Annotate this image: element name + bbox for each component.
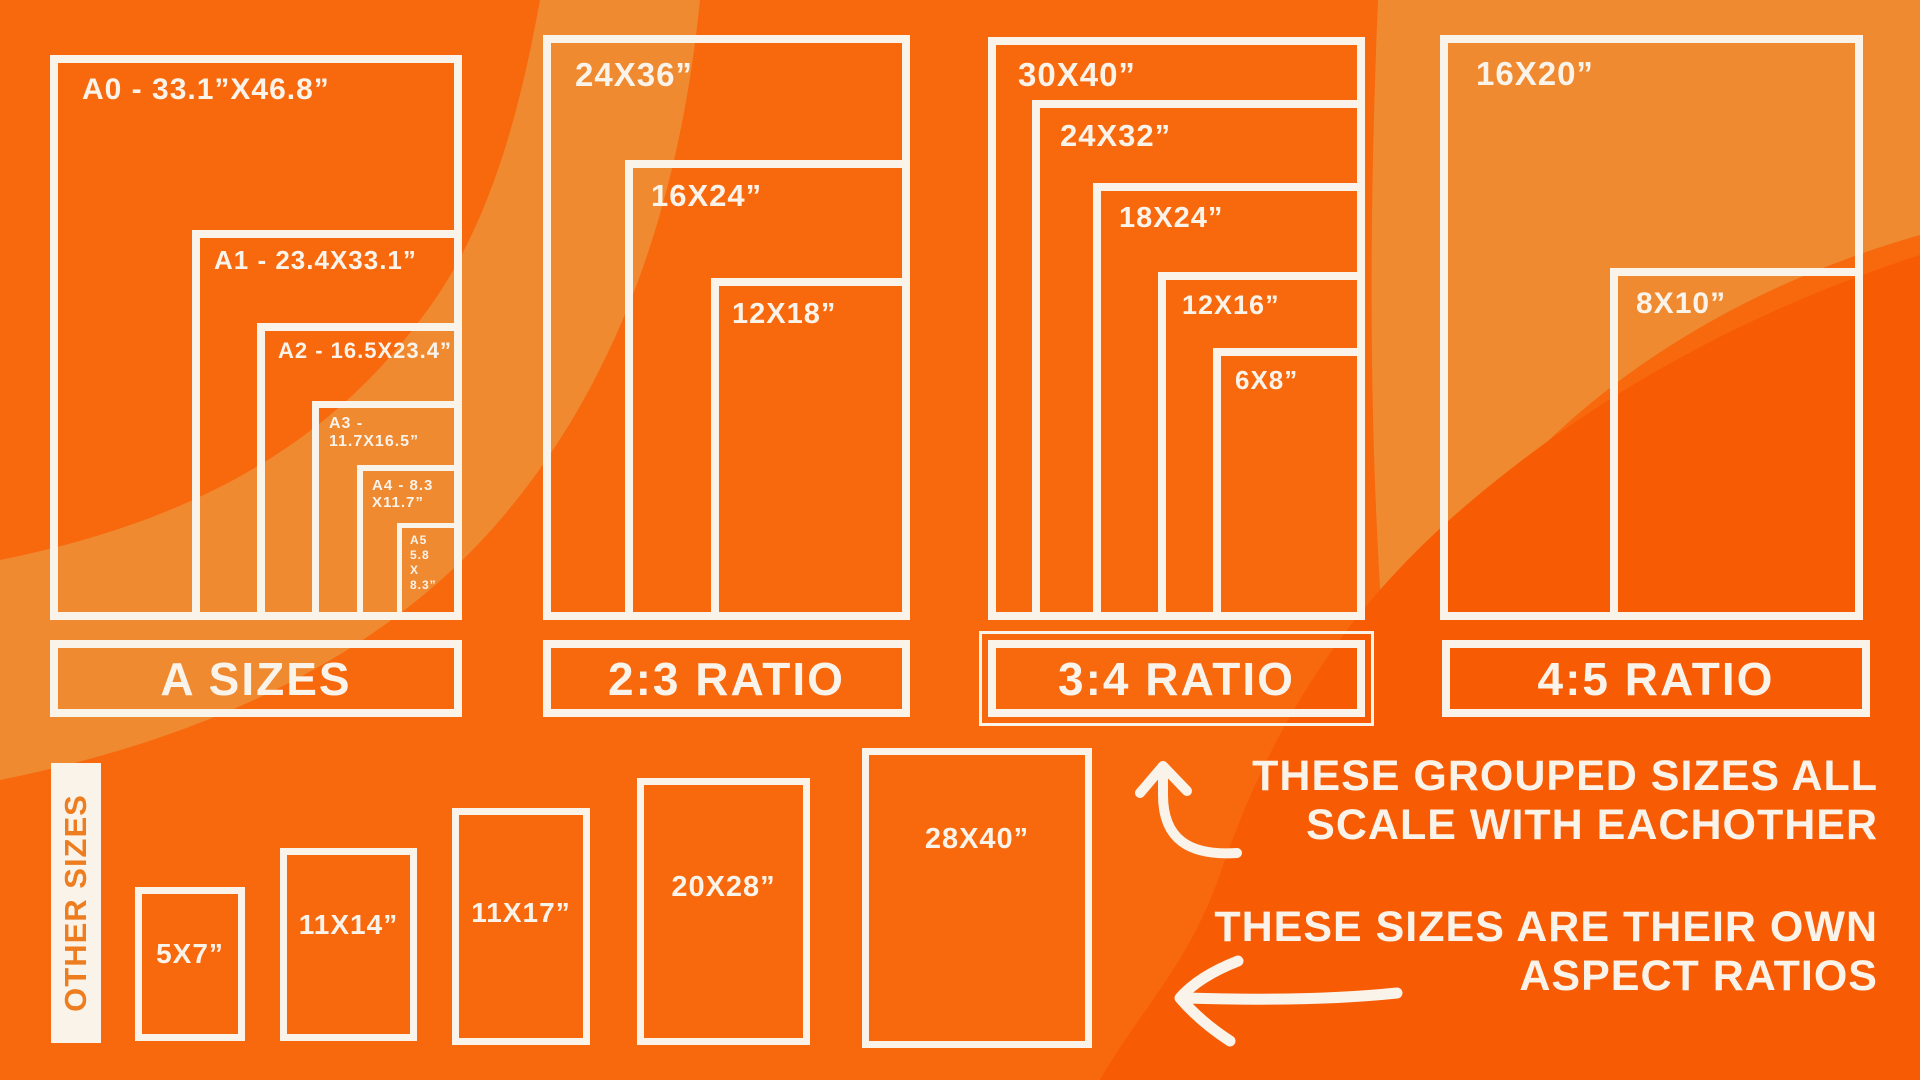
size-box-28x40: 28X40” <box>862 748 1092 1048</box>
size-label-5x7: 5X7” <box>156 938 224 970</box>
size-box-11x14: 11X14” <box>280 848 417 1041</box>
size-label-6x8: 6X8” <box>1221 356 1357 395</box>
group-label-2-3-ratio-text: 2:3 RATIO <box>608 652 845 706</box>
poster-size-infographic: A0 - 33.1”X46.8” A1 - 23.4X33.1” A2 - 16… <box>0 0 1920 1080</box>
size-label-a4: A4 - 8.3 X11.7” <box>363 471 456 512</box>
note-grouped-line1: THESE GROUPED SIZES ALL <box>1252 752 1878 801</box>
group-label-2-3-ratio: 2:3 RATIO <box>543 640 910 717</box>
size-label-a0: A0 - 33.1”X46.8” <box>58 63 454 107</box>
size-label-24x36: 24X36” <box>551 43 902 94</box>
size-label-11x14: 11X14” <box>299 909 398 941</box>
size-label-12x18: 12X18” <box>719 286 902 330</box>
size-label-24x32: 24X32” <box>1040 108 1357 154</box>
up-arrow-icon <box>1140 766 1237 853</box>
size-label-16x24: 16X24” <box>633 168 902 214</box>
size-label-a3: A3 - 11.7X16.5” <box>319 408 455 451</box>
other-sizes-bar: OTHER SIZES <box>51 763 101 1043</box>
size-label-12x16: 12X16” <box>1166 280 1357 320</box>
group-label-4-5-ratio-text: 4:5 RATIO <box>1538 652 1775 706</box>
note-grouped-sizes: THESE GROUPED SIZES ALL SCALE WITH EACHO… <box>1252 752 1878 850</box>
note-own-line1: THESE SIZES ARE THEIR OWN <box>1214 903 1878 952</box>
size-box-5x7: 5X7” <box>135 887 245 1041</box>
size-label-20x28: 20X28” <box>671 871 775 904</box>
group-label-a-sizes: A SIZES <box>50 640 462 717</box>
size-box-20x28: 20X28” <box>637 778 810 1045</box>
size-label-a5: A5 5.8 X 8.3” <box>402 528 457 593</box>
group-label-3-4-ratio: 3:4 RATIO <box>988 640 1365 717</box>
size-label-11x17: 11X17” <box>471 897 570 929</box>
other-sizes-label: OTHER SIZES <box>58 794 94 1012</box>
size-label-16x20: 16X20” <box>1448 43 1855 93</box>
size-box-a5: A5 5.8 X 8.3” <box>397 523 462 620</box>
size-label-30x40: 30X40” <box>996 45 1357 94</box>
size-box-6x8: 6X8” <box>1213 348 1365 620</box>
size-box-8x10: 8X10” <box>1610 268 1863 620</box>
size-label-a2: A2 - 16.5X23.4” <box>265 331 454 364</box>
group-label-4-5-ratio: 4:5 RATIO <box>1442 640 1870 717</box>
note-own-ratios: THESE SIZES ARE THEIR OWN ASPECT RATIOS <box>1214 903 1878 1001</box>
size-label-18x24: 18X24” <box>1101 191 1357 234</box>
size-label-8x10: 8X10” <box>1618 276 1855 321</box>
size-box-12x18: 12X18” <box>711 278 910 620</box>
size-label-a1: A1 - 23.4X33.1” <box>200 238 454 275</box>
size-label-28x40: 28X40” <box>925 823 1029 856</box>
size-box-11x17: 11X17” <box>452 808 590 1045</box>
group-label-a-sizes-text: A SIZES <box>160 652 351 706</box>
note-grouped-line2: SCALE WITH EACHOTHER <box>1252 801 1878 850</box>
group-label-3-4-ratio-text: 3:4 RATIO <box>1058 652 1295 706</box>
note-own-line2: ASPECT RATIOS <box>1214 952 1878 1001</box>
